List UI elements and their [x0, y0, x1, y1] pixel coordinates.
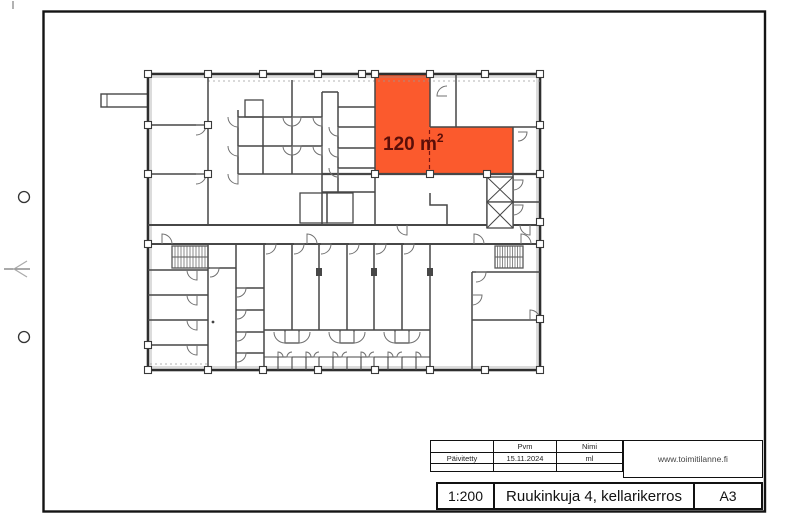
title-block-info-table: Pvm Nimi Päivitetty 15.11.2024 ml	[430, 440, 623, 472]
highlight-polygon	[375, 75, 513, 174]
centering-mark	[4, 261, 30, 277]
stairs-left	[172, 246, 208, 268]
door-pockets	[316, 268, 433, 276]
interior-walls	[148, 74, 540, 370]
info-value-date: 15.11.2024	[494, 453, 557, 464]
drawing-title: Ruukinkuja 4, kellarikerros	[495, 484, 695, 508]
info-cell-blank	[431, 441, 494, 453]
entrance-canopy	[101, 94, 148, 107]
drawing-sheet: 120 m2 Pvm Nimi Päivitetty 15.11.2024 ml…	[0, 0, 786, 524]
info-value-row: Päivitetty 15.11.2024 ml	[431, 453, 622, 464]
building: 120 m2	[101, 71, 544, 374]
title-block-main: 1:200 Ruukinkuja 4, kellarikerros A3	[436, 482, 763, 510]
info-header-row: Pvm Nimi	[431, 441, 622, 453]
website-box: www.toimitilanne.fi	[623, 440, 763, 478]
drawing-scale: 1:200	[438, 484, 495, 508]
punch-hole	[19, 192, 30, 343]
stairs-right	[495, 246, 523, 268]
info-label-paivitetty: Päivitetty	[431, 453, 494, 464]
elevator-shaft	[487, 177, 513, 228]
area-label: 120 m2	[383, 131, 444, 155]
columns	[145, 71, 544, 374]
info-header-nimi: Nimi	[557, 441, 622, 453]
info-header-pvm: Pvm	[494, 441, 557, 453]
info-value-initials: ml	[557, 453, 622, 464]
outer-walls	[148, 74, 540, 370]
info-empty-row	[431, 464, 622, 471]
survey-dot	[212, 321, 215, 324]
paper-size: A3	[695, 484, 761, 508]
website-text: www.toimitilanne.fi	[658, 454, 728, 464]
highlight-area	[375, 75, 513, 174]
